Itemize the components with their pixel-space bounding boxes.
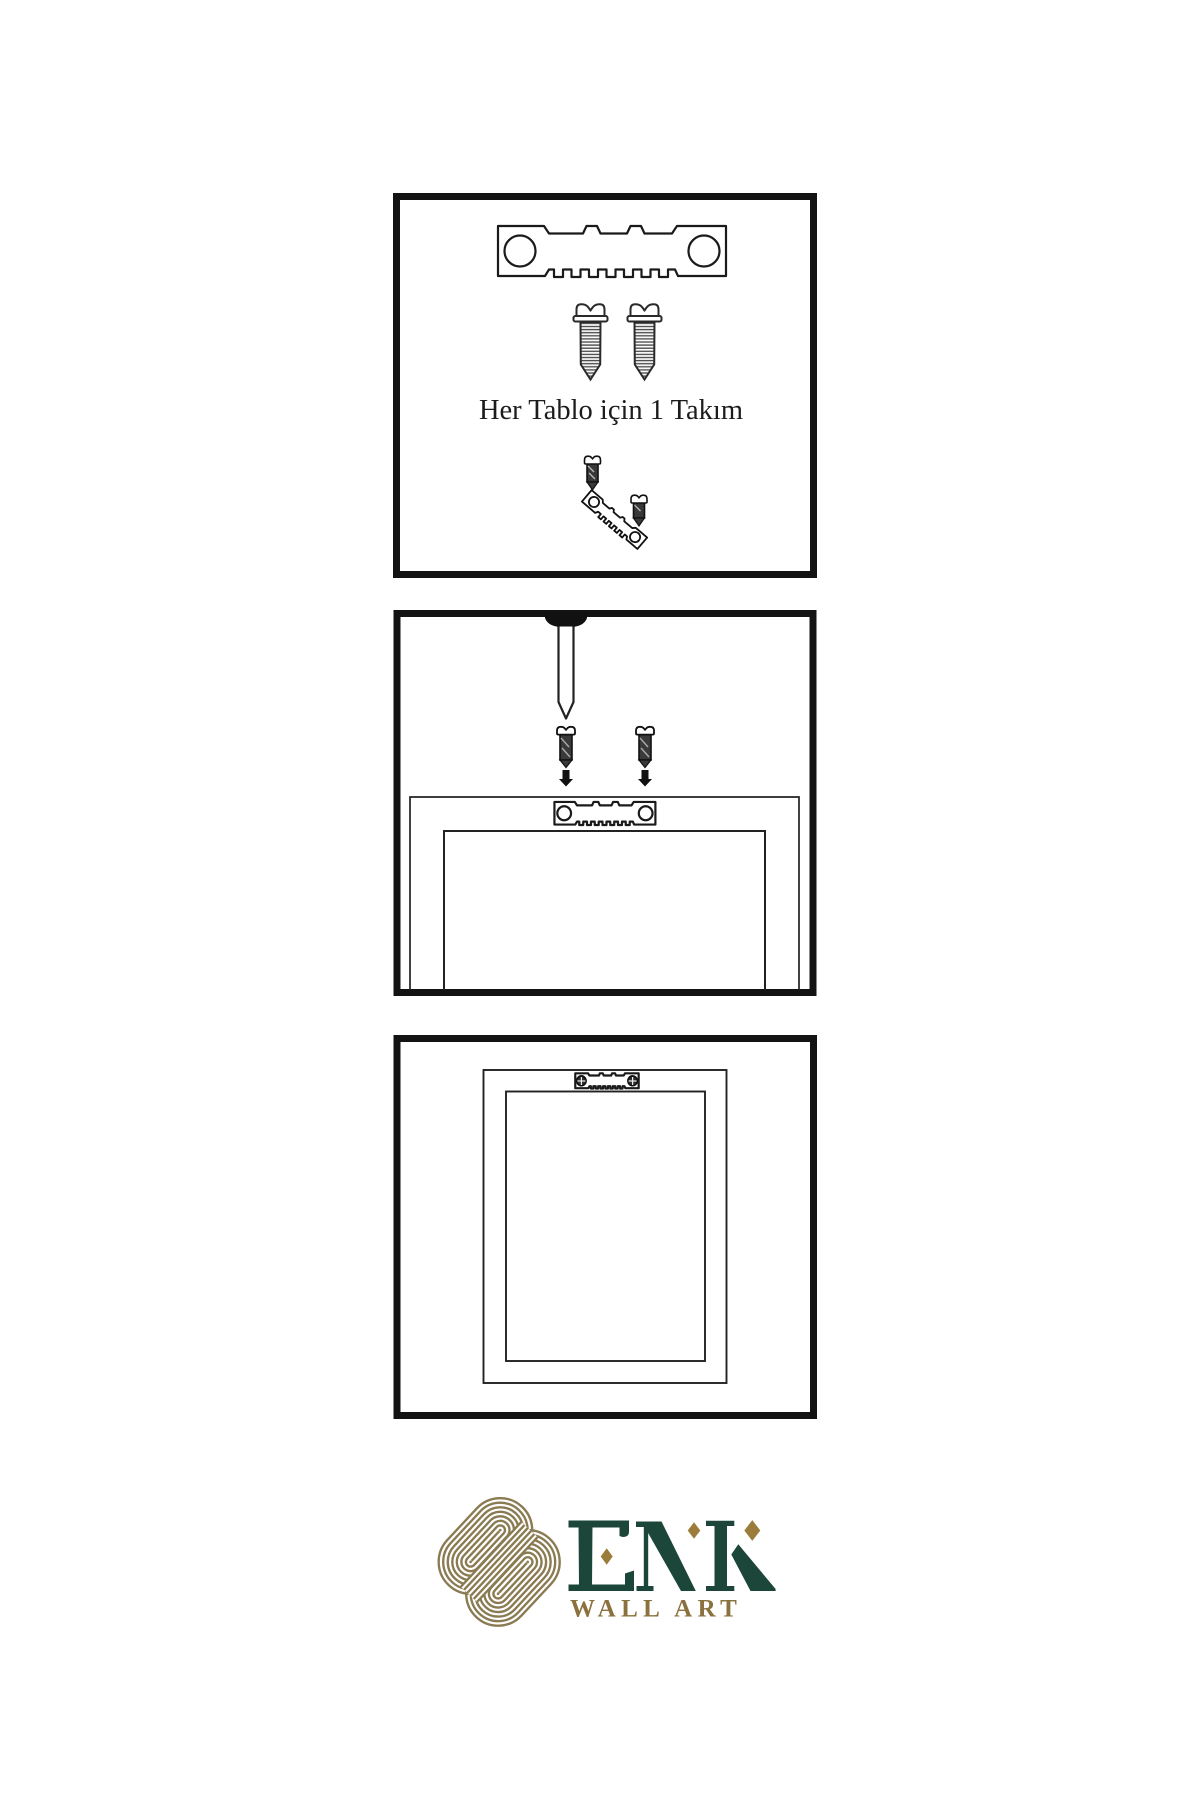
svg-text:Her Tablo için 1 Takım: Her Tablo için 1 Takım	[479, 395, 743, 426]
svg-text:WALL ART: WALL ART	[570, 1596, 742, 1623]
